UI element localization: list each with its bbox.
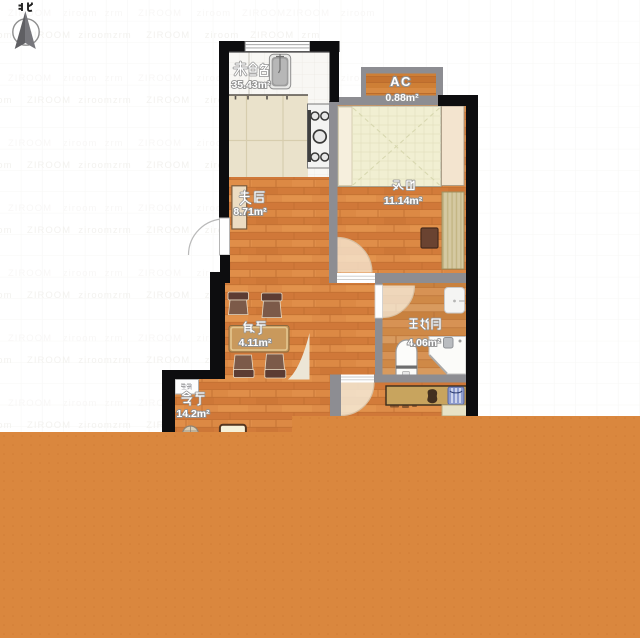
- svg-text:AC: AC: [390, 74, 412, 89]
- svg-text:ziroom ZIROOM ziroomzrm: ziroom ZIROOM ziroomzrm ZIROOM ziroom ZI…: [0, 30, 320, 41]
- svg-text:35.43m²: 35.43m²: [231, 79, 271, 91]
- svg-text:14.2m²: 14.2m²: [176, 408, 210, 420]
- svg-text:空调: 空调: [181, 383, 193, 391]
- svg-text:11.14m²: 11.14m²: [384, 195, 423, 207]
- svg-text:0.88m²: 0.88m²: [385, 92, 419, 104]
- svg-text:8.71m²: 8.71m²: [233, 206, 267, 218]
- svg-text:ZIROOM ziroom zrm ZIROOM: ZIROOM ziroom zrm ZIROOM ziroom ZIROOMZI…: [8, 8, 375, 19]
- svg-text:4.11m²: 4.11m²: [239, 337, 272, 349]
- svg-text:4.06m²: 4.06m²: [407, 337, 441, 349]
